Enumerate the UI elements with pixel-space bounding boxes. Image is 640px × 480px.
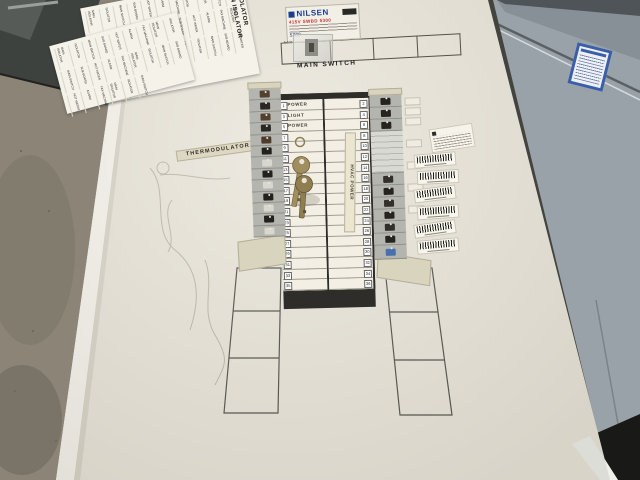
tiny-circuit-label: HOT WATER: [186, 15, 200, 39]
tiny-circuit-label: MAIN SWITCH: [134, 75, 149, 99]
row-number: 36: [364, 280, 372, 288]
row-number: 22: [362, 206, 370, 214]
row-number: 8: [360, 132, 368, 140]
tiny-circuit-label: FAX MACHINE: [135, 25, 150, 49]
toggle-dot: [389, 211, 391, 213]
spec-label-fine-print: [574, 53, 606, 85]
barcode-number: [425, 197, 447, 201]
toggle-dot: [386, 109, 388, 111]
barcode-number: [425, 163, 447, 166]
row-number: 33: [284, 271, 292, 279]
schedule-row: 36: [329, 278, 373, 290]
right-bank-modules: [369, 95, 407, 260]
barcode-sticker: [417, 203, 460, 220]
tiny-circuit-label: MAIN ISOLATOR: [149, 21, 164, 45]
toggle-dot: [266, 137, 268, 139]
row-number: 4: [360, 110, 368, 118]
toggle-dot: [386, 121, 388, 123]
tiny-circuit-label: ALARM: [101, 59, 116, 83]
main-switch-tag: F-8-W: [284, 40, 293, 44]
row-label: POWER: [287, 99, 307, 110]
tiny-circuit-label: MAIN SWITCH: [209, 0, 223, 9]
tiny-circuit-label: ISOLATOR: [99, 7, 113, 31]
row-number: 30: [363, 248, 371, 256]
row-number: 35: [284, 282, 292, 290]
tiny-circuit-label: SUB BOARD: [218, 33, 232, 57]
toggle-dot: [267, 148, 269, 150]
toggle-dot: [265, 91, 267, 93]
row-number: 14: [361, 163, 369, 171]
toggle-dot: [268, 193, 270, 195]
left-bank-modules: [249, 88, 286, 237]
toggle-dot: [385, 97, 387, 99]
breaker-module: [375, 245, 407, 260]
tiny-circuit-label: MAIN SWITCH: [155, 44, 170, 68]
tiny-circuit-label: ALARM: [122, 28, 137, 52]
toggle-dot: [388, 175, 390, 177]
tiny-circuit-label: MAIN SWITCH: [81, 39, 96, 63]
warning-fine-print: [433, 131, 473, 150]
tiny-circuit-label: ISOLATOR: [195, 0, 209, 12]
toggle-dot: [267, 171, 269, 173]
barcode-bars: [417, 153, 453, 163]
row-number: 10: [360, 142, 368, 150]
empty-cell: [374, 36, 418, 60]
tiny-circuit-label: MAIN ISOLATOR: [85, 10, 99, 34]
hvac-power-sticker: HVAC POWER: [344, 132, 356, 232]
label-black-block: [342, 8, 356, 15]
row-number: 18: [362, 185, 370, 193]
warning-logo-icon: [432, 131, 437, 136]
toggle-dot: [390, 235, 392, 237]
barcode-number: [427, 180, 449, 183]
tiny-circuit-label: MAIN SWITCH: [112, 4, 126, 28]
row-number: 16: [361, 174, 369, 182]
tiny-circuit-label: ALARM: [80, 89, 95, 113]
empty-cell: [417, 33, 461, 57]
tiny-circuit-label: MAIN SWITCH: [204, 36, 218, 60]
empty-cell: [330, 38, 374, 62]
toggle-dot: [390, 223, 392, 225]
barcode-bars: [420, 239, 456, 249]
tiny-circuit-label: ALARM: [199, 12, 213, 36]
tiny-circuit-label: MAIN ISOLATOR: [128, 52, 143, 76]
tiny-circuit-label: FAX MACHINE: [114, 55, 129, 79]
barcode-sticker: [417, 169, 460, 185]
tiny-circuit-label: FAX MACHINE: [213, 9, 227, 33]
row-number: 24: [362, 216, 370, 224]
breaker-module: [253, 225, 285, 238]
tiny-circuit-label: MAIN ISOLATOR: [181, 0, 195, 15]
row-number: 12: [361, 153, 369, 161]
tiny-circuit-label: ISOLATOR: [162, 18, 177, 42]
circuit-label-tab: [405, 107, 421, 116]
tiny-circuit-label: ISOLATOR: [190, 38, 204, 62]
tiny-circuit-label: HOT WATER: [87, 62, 102, 86]
circuit-schedule-card: 1POWER3LIGHT5POWER7911131517192123252729…: [278, 92, 376, 309]
barcode-number: [427, 214, 449, 217]
row-number: 34: [364, 269, 372, 277]
row-number: 6: [360, 121, 368, 129]
brand-name: NILSEN: [296, 8, 329, 19]
tiny-circuit-label: MAIN ISOLATOR: [54, 47, 69, 71]
tiny-circuit-label: MAIN ISOLATOR: [107, 82, 122, 106]
tiny-circuit-label: MAIN SWITCH: [60, 70, 75, 94]
breaker-toggle: [309, 43, 314, 52]
toggle-dot: [269, 228, 271, 230]
tiny-circuit-label: FAX MACHINE: [94, 86, 109, 110]
circuit-label-tab: [405, 117, 421, 126]
tiny-circuit-label: HOT WATER: [67, 93, 82, 117]
barcode-bars: [420, 205, 456, 214]
toggle-dot: [269, 205, 271, 207]
tiny-circuit-label: HOT WATER: [108, 32, 123, 56]
circuit-label-tab: [404, 97, 420, 106]
tiny-circuit-label: SUB BOARD: [168, 41, 183, 65]
row-number: 20: [362, 195, 370, 203]
tiny-circuit-label: ISOLATOR: [121, 78, 136, 102]
toggle-dot: [265, 114, 267, 116]
barcode-number: [428, 249, 450, 252]
left-breaker-bank: [247, 81, 286, 237]
row-label: LIGHT: [288, 110, 305, 120]
row-number: 32: [364, 259, 372, 267]
tiny-circuit-label: SUB BOARD: [95, 36, 110, 60]
tiny-circuit-label: ISOLATOR: [141, 48, 156, 72]
barcode-bars: [420, 171, 456, 180]
row-number: 26: [363, 227, 371, 235]
toggle-dot: [389, 199, 391, 201]
toggle-dot: [388, 187, 390, 189]
row-label: POWER: [288, 121, 308, 132]
tiny-circuit-label: SUB BOARD: [74, 66, 89, 90]
row-number: 28: [363, 238, 371, 246]
toggle-dot: [391, 247, 393, 249]
main-switch-breaker: [293, 34, 333, 62]
row-number: 2: [359, 100, 367, 108]
nilsen-logo-icon: [288, 11, 294, 17]
schedule-row: 35: [283, 279, 327, 291]
blank-module: [371, 131, 404, 174]
photo-of-switchboard: NILSEN 415V SWBD 5300 5300 F-8-W MAIN SW…: [0, 0, 640, 480]
circuit-label-tab: [406, 139, 422, 148]
tiny-circuit-label: ISOLATOR: [68, 43, 83, 67]
